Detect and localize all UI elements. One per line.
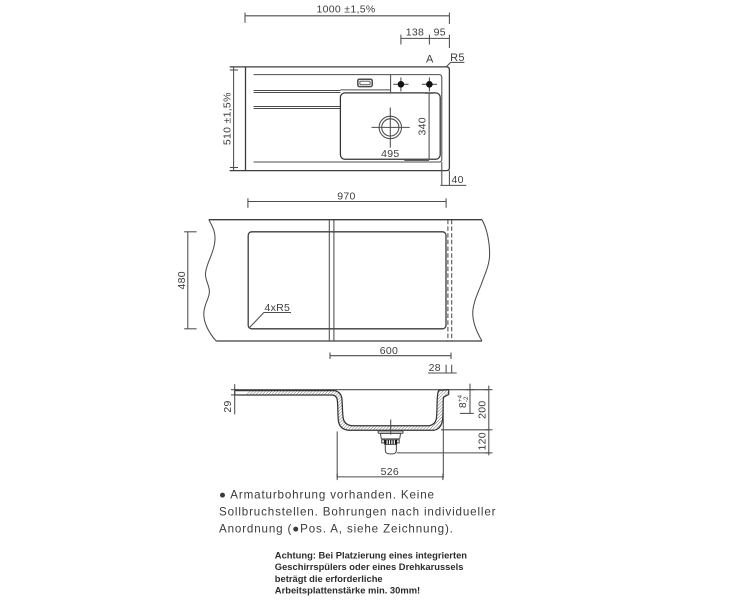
svg-text:340: 340: [416, 117, 428, 135]
svg-text:510 ±1,5%: 510 ±1,5%: [222, 92, 234, 145]
svg-text:Geschirrspülers oder eines Dre: Geschirrspülers oder eines Drehkarussels: [275, 561, 464, 572]
svg-text:A: A: [426, 54, 434, 66]
svg-text:600: 600: [380, 345, 398, 357]
svg-text:40: 40: [452, 174, 464, 186]
svg-text:Arbeitsplattenstärke min. 30mm: Arbeitsplattenstärke min. 30mm!: [275, 585, 420, 596]
svg-text:495: 495: [381, 148, 399, 160]
svg-text:beträgt die erforderliche: beträgt die erforderliche: [275, 573, 383, 584]
svg-text:1000 ±1,5%: 1000 ±1,5%: [317, 4, 376, 16]
svg-text:-2: -2: [463, 396, 470, 402]
svg-text:29: 29: [222, 400, 234, 412]
svg-text:95: 95: [434, 26, 446, 38]
svg-text:970: 970: [337, 191, 355, 203]
svg-text:Anordnung (●Pos. A, siehe Zeic: Anordnung (●Pos. A, siehe Zeichnung).: [219, 522, 454, 535]
svg-text:120: 120: [476, 432, 488, 450]
svg-text:526: 526: [381, 466, 399, 478]
svg-text:● Armaturbohrung vorhanden. Ke: ● Armaturbohrung vorhanden. Keine: [219, 489, 435, 502]
svg-text:Achtung: Bei Platzierung eines: Achtung: Bei Platzierung eines integrier…: [275, 549, 467, 560]
svg-text:200: 200: [476, 400, 488, 418]
svg-text:Sollbruchstellen. Bohrungen na: Sollbruchstellen. Bohrungen nach individ…: [219, 506, 496, 519]
svg-text:138: 138: [406, 26, 424, 38]
svg-text:480: 480: [176, 271, 188, 289]
svg-text:28: 28: [429, 362, 441, 374]
